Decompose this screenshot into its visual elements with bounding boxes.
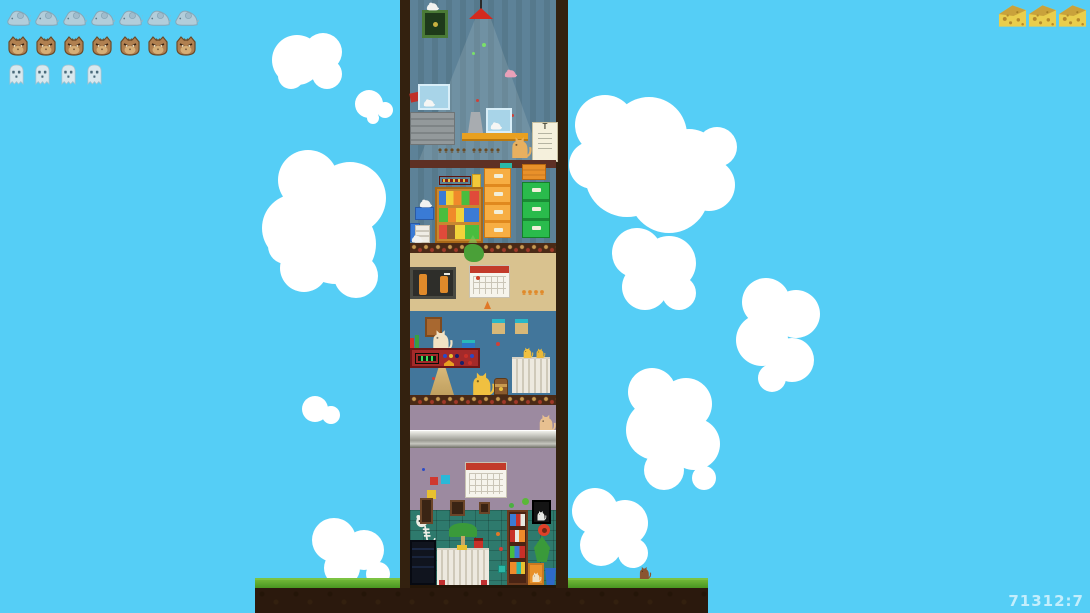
- photo-cat: [536, 509, 547, 521]
- drawer-handle: [494, 192, 503, 196]
- lounge-room: [410, 405, 556, 510]
- drawer-handle: [494, 228, 503, 232]
- red-speck: [496, 342, 500, 346]
- teal-box: [500, 163, 512, 168]
- score-counter: 71312:7: [1008, 592, 1084, 610]
- hud-cheese-row: [998, 3, 1087, 29]
- desk-pedestal: [430, 368, 454, 395]
- crumb-trail: [472, 148, 500, 153]
- blue-bucket: [545, 568, 556, 585]
- cloud: [302, 396, 328, 422]
- drawer-handle: [532, 226, 541, 230]
- orange-crate: [528, 563, 544, 585]
- frame-detail: [433, 22, 438, 27]
- shelf-books: [510, 562, 525, 574]
- eye-chart: T: [532, 122, 558, 162]
- cloud: [272, 35, 322, 85]
- mouse-icon: [174, 6, 199, 30]
- tower: T: [400, 0, 568, 588]
- crumb-trail: [522, 290, 544, 295]
- red-speck: [432, 377, 435, 380]
- crumb-trail: [438, 148, 466, 153]
- cat-icon: [34, 34, 58, 60]
- led-display: [415, 353, 439, 364]
- white-mouse[interactable]: [411, 234, 423, 243]
- cyan-square: [441, 475, 450, 484]
- cheese-icon: [998, 3, 1027, 29]
- cat-icon: [62, 34, 86, 60]
- hanging-box: [515, 319, 528, 334]
- button[interactable]: [455, 354, 459, 358]
- calendar-header: [466, 463, 506, 470]
- white-mouse[interactable]: [490, 121, 502, 130]
- crate-cat[interactable]: [531, 570, 542, 583]
- button[interactable]: [460, 361, 464, 365]
- picture-frame: [479, 502, 490, 514]
- red-speck: [499, 547, 503, 551]
- firefly: [472, 52, 475, 55]
- office-room-upper: [410, 253, 556, 311]
- picture-frame-green: [422, 10, 448, 38]
- books-row: [439, 191, 479, 205]
- table-lamp: [449, 523, 477, 537]
- button[interactable]: [470, 354, 474, 358]
- bookshelf: [435, 187, 483, 243]
- button[interactable]: [468, 361, 472, 365]
- drawer-handle: [494, 174, 503, 178]
- drawer-handle: [532, 188, 541, 192]
- red-speck: [476, 99, 479, 102]
- mouse-icon: [146, 6, 171, 30]
- cat-icon: [118, 34, 142, 60]
- ceiling-lamp: [469, 8, 493, 19]
- mouse-tank: [486, 108, 512, 133]
- radiator: [512, 357, 550, 393]
- mouse-icon: [62, 6, 87, 30]
- library-room: [410, 168, 556, 243]
- game-viewport: T: [0, 0, 1090, 613]
- dirt-ground: [255, 588, 708, 613]
- shelf-books: [510, 530, 525, 542]
- calendar-header: [470, 266, 509, 273]
- cloud: [312, 518, 356, 562]
- green-speck: [509, 503, 514, 508]
- cloud: [628, 368, 676, 416]
- cloud: [575, 95, 635, 155]
- ghost-icon: [34, 62, 51, 87]
- hud-ghosts-row: [8, 62, 103, 87]
- white-mouse[interactable]: [419, 198, 432, 208]
- eye-chart-rows: [538, 133, 552, 151]
- brown-cat-outside[interactable]: [638, 565, 652, 579]
- cheese-icon: [1028, 3, 1057, 29]
- flower-center: [542, 528, 547, 533]
- cat-icon: [146, 34, 170, 60]
- chalk-mark: [444, 273, 450, 275]
- pink-mouse[interactable]: [504, 68, 517, 78]
- white-mouse[interactable]: [423, 98, 435, 107]
- hud-mice-row: [6, 6, 199, 30]
- flower-red: [538, 524, 550, 536]
- white-mouse[interactable]: [426, 1, 439, 11]
- hanging-plant: [464, 244, 484, 262]
- books-row: [439, 208, 479, 222]
- drawer-handle: [494, 210, 503, 214]
- wall-calendar: [465, 462, 507, 498]
- chalkboard: [410, 267, 456, 299]
- drawer-handle: [532, 207, 541, 211]
- button[interactable]: [443, 354, 447, 358]
- picture-frame: [450, 500, 465, 516]
- cloud: [355, 90, 383, 118]
- eye-chart-letter: T: [533, 123, 557, 131]
- mouse-tank: [418, 84, 450, 110]
- control-desk: [410, 348, 480, 368]
- shelf-cat[interactable]: [509, 132, 533, 160]
- office-room-lower: [410, 311, 556, 395]
- shelf-books: [510, 546, 525, 558]
- mouse-icon: [118, 6, 143, 30]
- cat-icon: [6, 34, 30, 60]
- radiator: [437, 548, 489, 585]
- cat-photo-frame: [532, 500, 551, 524]
- cloud: [742, 278, 790, 326]
- dark-poster: [410, 540, 436, 585]
- tower-base: [410, 585, 556, 588]
- treasure-chest: [494, 378, 508, 395]
- radio-teal: [462, 340, 475, 348]
- button[interactable]: [449, 354, 453, 358]
- gray-console: [410, 112, 455, 145]
- yellow-lever[interactable]: [444, 360, 454, 366]
- blue-speck: [422, 468, 425, 471]
- orange-speck: [496, 532, 500, 536]
- tall-bookshelf: [507, 510, 528, 585]
- teal-mini-frame: [498, 565, 506, 573]
- radiator-knob: [457, 545, 467, 550]
- wall-sign-red: [439, 176, 471, 185]
- metal-pipe: [410, 430, 556, 448]
- yellow-kitten[interactable]: [522, 346, 534, 358]
- hanging-box: [492, 319, 505, 334]
- cloud: [612, 228, 662, 278]
- blue-box: [415, 207, 434, 220]
- ghost-icon: [86, 62, 103, 87]
- shelf-books: [510, 514, 525, 526]
- cloud: [572, 488, 618, 534]
- mouse-icon: [34, 6, 59, 30]
- plant-leaves: [534, 536, 550, 562]
- yellow-kitten[interactable]: [535, 347, 546, 358]
- filing-cabinet-orange: [484, 168, 511, 238]
- ghost-icon: [8, 62, 25, 87]
- wall-calendar: [469, 265, 510, 298]
- firefly: [482, 43, 486, 47]
- jar-orange: [419, 274, 427, 295]
- green-apple: [522, 498, 529, 505]
- cat-icon: [174, 34, 198, 60]
- orange-item: [484, 301, 491, 309]
- picture-frame: [420, 498, 433, 524]
- calendar-grid: [469, 473, 503, 494]
- hud-cats-row: [6, 34, 198, 60]
- attic-room: T: [410, 0, 556, 160]
- cat-icon: [90, 34, 114, 60]
- filing-cabinet-green: [522, 182, 550, 238]
- cloud: [278, 150, 338, 210]
- mouse-icon: [6, 6, 31, 30]
- red-square: [430, 477, 438, 485]
- red-box: [474, 538, 483, 548]
- calendar-mark: [476, 276, 480, 280]
- mouse-icon: [90, 6, 115, 30]
- ghost-icon: [60, 62, 77, 87]
- button[interactable]: [464, 354, 468, 358]
- chest-lock: [499, 387, 503, 391]
- jar-orange: [440, 276, 448, 293]
- cheese-icon: [1058, 3, 1087, 29]
- wood-desk: [522, 164, 546, 180]
